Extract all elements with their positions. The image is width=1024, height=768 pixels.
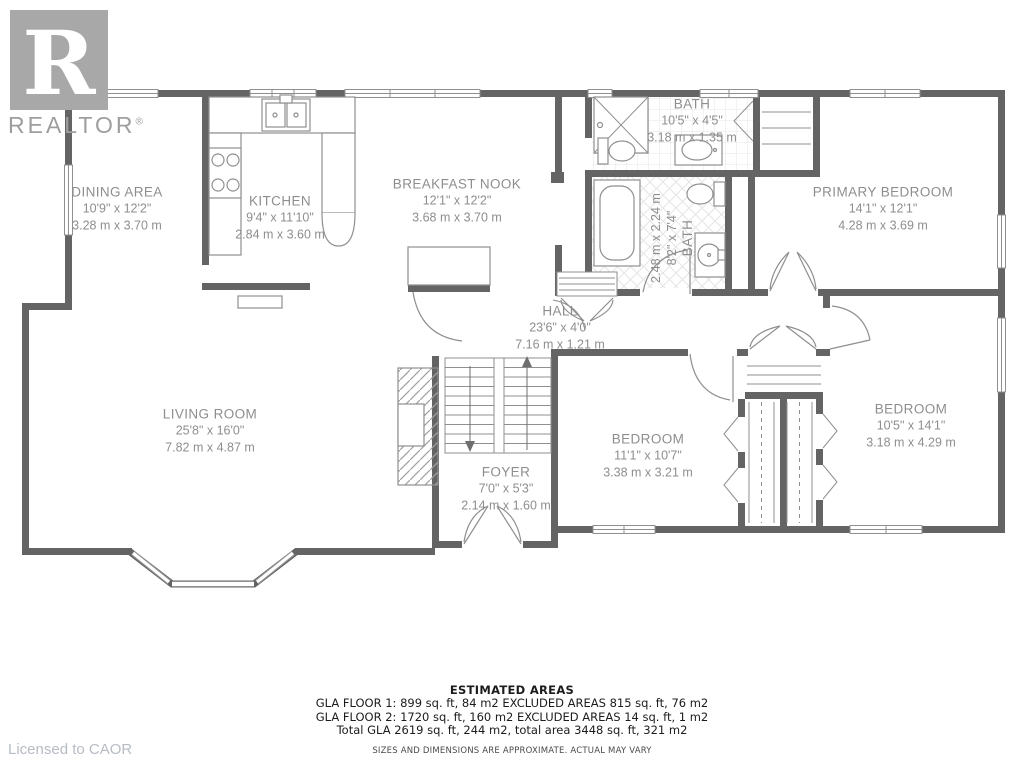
gla-floor2-line: GLA FLOOR 2: 1720 sq. ft, 160 m2 EXCLUDE… xyxy=(0,711,1024,725)
toilet-bowl-upper xyxy=(609,141,635,161)
realtor-wordmark: REALTOR® xyxy=(8,112,143,139)
disclaimer-text: SIZES AND DIMENSIONS ARE APPROXIMATE. AC… xyxy=(0,746,1024,756)
kitchen-bench xyxy=(238,296,282,308)
staircase[interactable] xyxy=(445,356,551,453)
room-label-foyer: FOYER7'0" x 5'3"2.14 m x 1.60 m xyxy=(461,464,551,515)
bifold-doors-east xyxy=(823,414,837,499)
realtor-logo-icon: R xyxy=(10,10,108,115)
floorplan-page: R DINING AREA10'9" x 12'2"3.28 m x 3.70 … xyxy=(0,0,1024,768)
nook-cabinet xyxy=(408,247,490,285)
registered-symbol: ® xyxy=(136,116,143,127)
shower-head xyxy=(598,123,603,128)
bifold-doors-west xyxy=(724,417,738,502)
primary-closet-shelves xyxy=(762,112,811,144)
toilet-tank-upper xyxy=(598,138,608,164)
room-label-bedroom-center: BEDROOM11'1" x 10'7"3.38 m x 3.21 m xyxy=(603,431,693,482)
estimated-areas-title: ESTIMATED AREAS xyxy=(0,683,1024,697)
room-label-dining-area: DINING AREA10'9" x 12'2"3.28 m x 3.70 m xyxy=(71,184,162,235)
total-gla-line: Total GLA 2619 sq. ft, 244 m2, total are… xyxy=(0,724,1024,738)
room-label-bath-lower: 2.48 m x 2.24 m8'2" x 7'4"BATH xyxy=(648,193,696,283)
bedroom-right-door xyxy=(830,306,870,349)
licensed-to-text: Licensed to CAOR xyxy=(8,741,132,758)
kitchen-faucet xyxy=(280,95,292,103)
primary-bedroom-doors xyxy=(770,252,816,291)
room-label-bedroom-right: BEDROOM10'5" x 14'1"3.18 m x 4.29 m xyxy=(866,401,956,452)
floorplan-drawing: R xyxy=(0,0,1024,768)
room-label-bath-upper: BATH10'5" x 4'5"3.18 m x 1.35 m xyxy=(647,96,737,147)
room-label-breakfast-nook: BREAKFAST NOOK12'1" x 12'2"3.68 m x 3.70… xyxy=(393,176,521,227)
realtor-logo-letter: R xyxy=(22,11,96,115)
gla-floor1-line: GLA FLOOR 1: 899 sq. ft, 84 m2 EXCLUDED … xyxy=(0,697,1024,711)
bedroom-center-door xyxy=(690,354,733,402)
arch-door xyxy=(413,292,462,341)
bathtub-inner xyxy=(600,186,634,260)
linen-closet-shelves xyxy=(747,366,821,384)
room-label-living-room: LIVING ROOM25'8" x 16'0"7.82 m x 4.87 m xyxy=(163,406,257,457)
room-label-kitchen: KITCHEN9'4" x 11'10"2.84 m x 3.60 m xyxy=(235,193,325,244)
fireplace xyxy=(398,368,438,485)
room-label-primary-bedroom: PRIMARY BEDROOM14'1" x 12'1"4.28 m x 3.6… xyxy=(813,184,954,235)
room-label-hall: HALL23'6" x 4'0"7.16 m x 1.21 m xyxy=(515,303,605,354)
toilet-tank-lower xyxy=(714,182,725,206)
linen-closet-doors xyxy=(750,326,816,349)
estimated-areas-block: ESTIMATED AREAS GLA FLOOR 1: 899 sq. ft,… xyxy=(0,683,1024,756)
